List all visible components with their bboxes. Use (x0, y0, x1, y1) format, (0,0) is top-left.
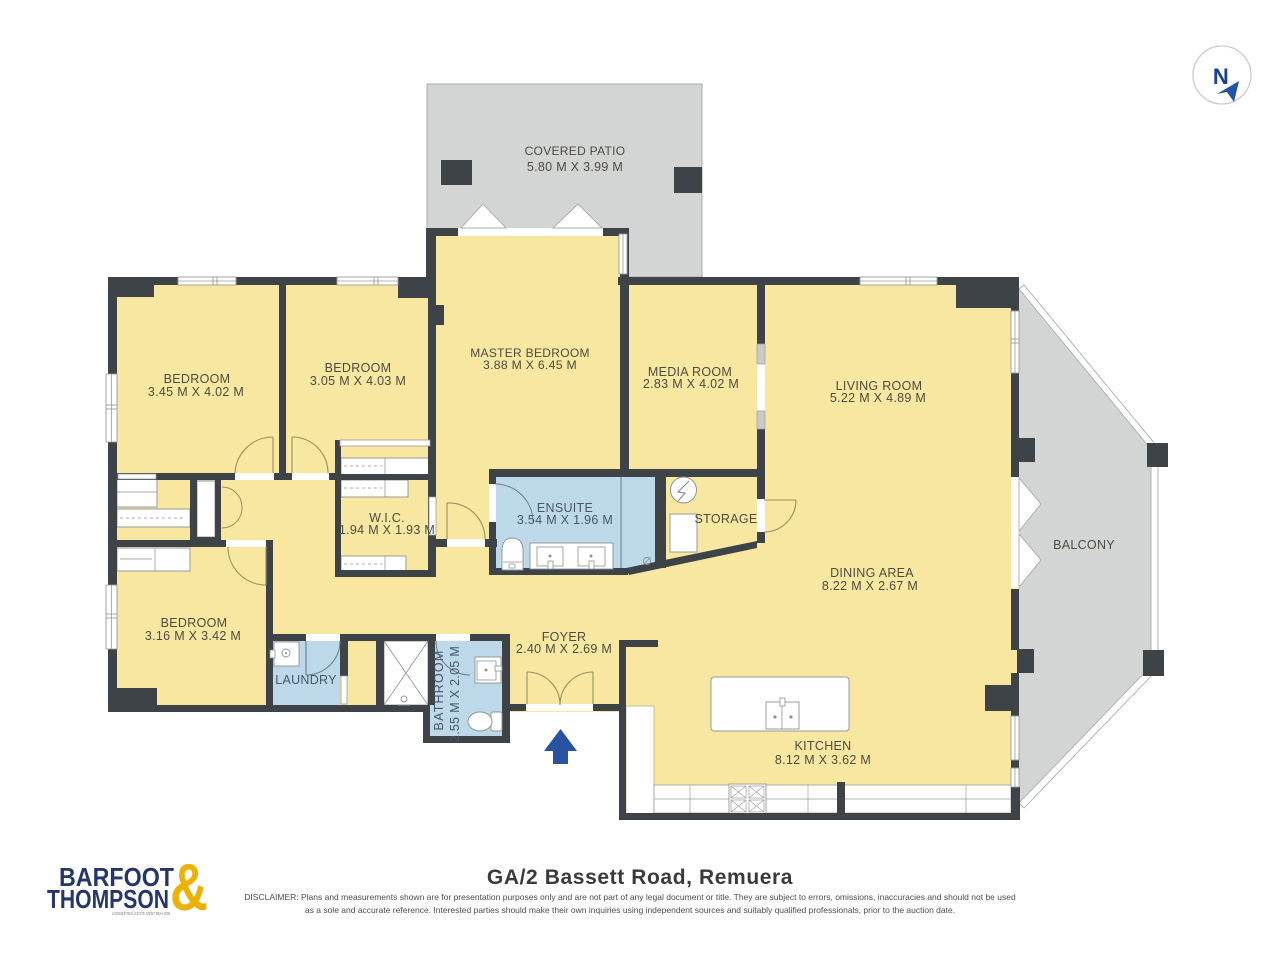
svg-text:1.94 M X 1.93 M: 1.94 M X 1.93 M (339, 523, 435, 537)
svg-text:THOMPSON: THOMPSON (47, 884, 169, 914)
svg-text:LICENSED REAL ESTATE AGENT REA: LICENSED REAL ESTATE AGENT REAA 2008 (112, 911, 170, 916)
svg-text:LAUNDRY: LAUNDRY (275, 673, 337, 687)
svg-text:GA/2 Bassett Road, Remuera: GA/2 Bassett Road, Remuera (487, 866, 793, 889)
svg-text:&: & (170, 850, 208, 924)
svg-text:as a sole and accurate referen: as a sole and accurate reference. Intere… (305, 905, 955, 915)
svg-text:BEDROOM: BEDROOM (161, 616, 228, 630)
svg-text:3.45 M X 4.02 M: 3.45 M X 4.02 M (148, 385, 244, 399)
svg-text:3.54 M X 1.96 M: 3.54 M X 1.96 M (517, 513, 613, 527)
svg-text:STORAGE: STORAGE (695, 512, 758, 526)
svg-text:BEDROOM: BEDROOM (325, 361, 392, 375)
svg-text:DINING AREA: DINING AREA (830, 566, 914, 580)
svg-text:DISCLAIMER: Plans and measurem: DISCLAIMER: Plans and measurements shown… (244, 892, 1016, 902)
svg-text:2.40 M X 2.69 M: 2.40 M X 2.69 M (516, 642, 612, 656)
svg-text:5.22 M X 4.89 M: 5.22 M X 4.89 M (830, 391, 926, 405)
svg-text:3.88 M X 6.45 M: 3.88 M X 6.45 M (483, 358, 577, 372)
svg-text:2.55 M X 2.05 M: 2.55 M X 2.05 M (448, 646, 462, 742)
svg-text:KITCHEN: KITCHEN (795, 739, 852, 753)
svg-text:N: N (1213, 64, 1229, 89)
svg-text:2.83 M X 4.02 M: 2.83 M X 4.02 M (643, 377, 739, 391)
svg-text:8.12 M X 3.62 M: 8.12 M X 3.62 M (775, 753, 871, 767)
svg-text:BALCONY: BALCONY (1053, 538, 1115, 552)
svg-text:COVERED PATIO: COVERED PATIO (525, 144, 626, 158)
svg-text:BATHROOM: BATHROOM (432, 650, 446, 731)
svg-text:5.80 M X 3.99 M: 5.80 M X 3.99 M (527, 160, 623, 174)
svg-text:8.22 M X 2.67 M: 8.22 M X 2.67 M (822, 579, 918, 593)
svg-text:BEDROOM: BEDROOM (164, 372, 231, 386)
svg-text:3.16 M X 3.42 M: 3.16 M X 3.42 M (145, 629, 241, 643)
svg-text:3.05 M X 4.03 M: 3.05 M X 4.03 M (310, 374, 406, 388)
